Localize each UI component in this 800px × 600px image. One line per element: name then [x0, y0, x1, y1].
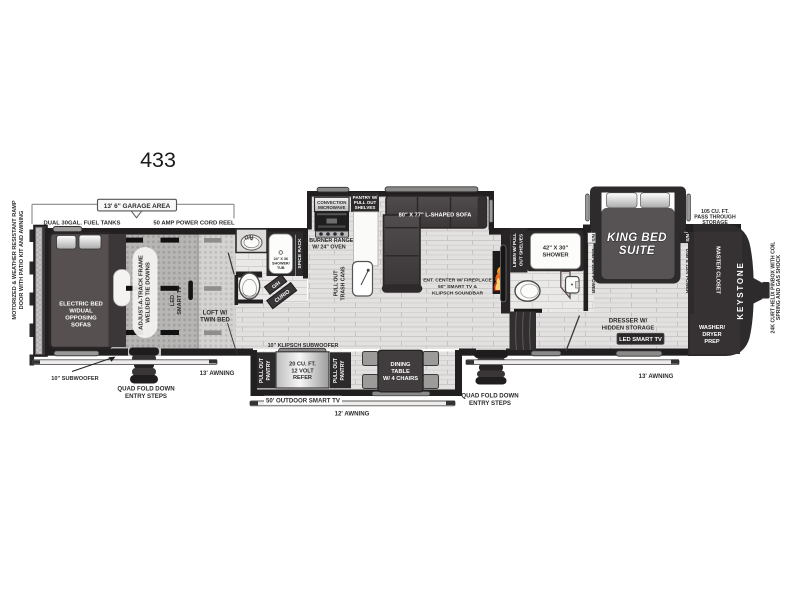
svg-text:QUAD FOLD DOWN: QUAD FOLD DOWN [117, 386, 174, 393]
svg-text:ENTRY STEPS: ENTRY STEPS [125, 393, 167, 400]
svg-text:50" SMART TV &: 50" SMART TV & [438, 284, 477, 290]
svg-text:WASHER/: WASHER/ [699, 325, 726, 331]
svg-text:OUT SHELVES: OUT SHELVES [519, 234, 524, 266]
svg-text:SUITE: SUITE [619, 244, 656, 257]
svg-text:DRESSER W/: DRESSER W/ [609, 318, 648, 325]
svg-text:KING BED: KING BED [607, 231, 667, 244]
svg-text:24" X 36: 24" X 36 [274, 257, 288, 261]
svg-text:DOOR WITH PATIO KIT AND AWNING: DOOR WITH PATIO KIT AND AWNING [19, 211, 25, 310]
svg-text:TUB: TUB [277, 266, 285, 270]
svg-text:LOFT W/: LOFT W/ [203, 311, 228, 317]
svg-text:MOTORIZED & WEATHER RESISTANT: MOTORIZED & WEATHER RESISTANT RAMP [12, 200, 18, 320]
svg-text:SPICE RACK: SPICE RACK [297, 238, 303, 269]
svg-text:KLIPSCH SOUNDBAR: KLIPSCH SOUNDBAR [432, 291, 484, 297]
svg-text:LINEN W/ PULL: LINEN W/ PULL [512, 233, 517, 267]
svg-text:SPRING AND GAS SHOCK: SPRING AND GAS SHOCK [776, 255, 782, 320]
svg-text:SHOWER: SHOWER [542, 253, 569, 259]
svg-text:DUAL 30GAL. FUEL TANKS: DUAL 30GAL. FUEL TANKS [44, 220, 121, 226]
svg-text:W/ 4 CHAIRS: W/ 4 CHAIRS [383, 376, 418, 382]
svg-text:USB & 110V POWER: USB & 110V POWER [591, 249, 596, 294]
svg-text:PULL OUT: PULL OUT [259, 358, 265, 383]
svg-text:DINING: DINING [391, 362, 411, 368]
svg-text:20 CU. FT.: 20 CU. FT. [289, 362, 316, 368]
svg-text:TABLE: TABLE [391, 369, 410, 375]
svg-text:LED SMART TV: LED SMART TV [619, 337, 662, 343]
svg-text:SHELVES: SHELVES [355, 205, 376, 210]
svg-text:USB & 110V POWER: USB & 110V POWER [685, 249, 690, 294]
svg-text:LED: LED [170, 295, 176, 306]
svg-text:50' OUTDOOR SMART TV: 50' OUTDOOR SMART TV [266, 398, 341, 405]
svg-text:80" X 77" L-SHAPED SOFA: 80" X 77" L-SHAPED SOFA [399, 213, 472, 219]
svg-text:SOFAS: SOFAS [71, 323, 91, 329]
svg-text:ELECTRIC BED: ELECTRIC BED [59, 302, 103, 308]
svg-text:10" SUBWOOFER: 10" SUBWOOFER [51, 376, 98, 382]
svg-text:433: 433 [140, 148, 176, 172]
svg-text:13' AWNING: 13' AWNING [200, 370, 235, 377]
svg-text:MICROWAVE: MICROWAVE [318, 205, 345, 210]
svg-text:10" KLIPSCH SUBWOOFER: 10" KLIPSCH SUBWOOFER [268, 343, 339, 349]
svg-text:TRASH CANS: TRASH CANS [341, 266, 347, 301]
svg-text:W/DUAL: W/DUAL [69, 309, 93, 315]
svg-text:QUAD FOLD DOWN: QUAD FOLD DOWN [461, 393, 518, 400]
svg-text:13' AWNING: 13' AWNING [639, 373, 674, 380]
svg-text:ENTRY STEPS: ENTRY STEPS [469, 400, 511, 407]
svg-text:W/ 24" OVEN: W/ 24" OVEN [312, 244, 346, 250]
svg-text:PANTRY: PANTRY [266, 360, 272, 381]
svg-text:N/S: N/S [685, 234, 690, 242]
svg-text:REFER: REFER [293, 375, 312, 381]
svg-text:4 BURNER RANGE: 4 BURNER RANGE [305, 238, 354, 244]
svg-text:KEYSTONE: KEYSTONE [736, 261, 745, 319]
svg-text:O/H: O/H [245, 236, 254, 242]
svg-text:HIDDEN STORAGE: HIDDEN STORAGE [602, 326, 655, 332]
svg-text:SMART TV: SMART TV [177, 286, 183, 315]
svg-text:WELDED TIE DOWNS: WELDED TIE DOWNS [146, 262, 152, 323]
svg-text:OPPOSING: OPPOSING [65, 316, 97, 322]
svg-text:PULL OUT: PULL OUT [333, 358, 339, 383]
svg-text:12 VOLT: 12 VOLT [291, 368, 314, 374]
svg-text:PREP: PREP [704, 339, 720, 345]
svg-text:SHOWER/: SHOWER/ [272, 261, 290, 265]
svg-text:DRYER: DRYER [702, 332, 721, 338]
svg-text:N/S: N/S [591, 234, 596, 242]
svg-text:12' AWNING: 12' AWNING [335, 410, 370, 417]
svg-text:MASTER CLOSET: MASTER CLOSET [715, 246, 721, 294]
svg-text:ADJUST-A-TRACK FRAME: ADJUST-A-TRACK FRAME [139, 255, 145, 330]
svg-text:PULL OUT: PULL OUT [334, 270, 340, 297]
svg-text:PANTRY: PANTRY [340, 360, 346, 381]
svg-text:TWIN BED: TWIN BED [200, 318, 230, 324]
svg-text:50 AMP POWER CORD REEL: 50 AMP POWER CORD REEL [153, 220, 235, 226]
svg-text:42" X 30": 42" X 30" [543, 246, 569, 252]
svg-text:13' 6" GARAGE AREA: 13' 6" GARAGE AREA [104, 203, 171, 210]
svg-text:ENT. CENTER W/ FIREPLACE: ENT. CENTER W/ FIREPLACE [423, 278, 492, 284]
